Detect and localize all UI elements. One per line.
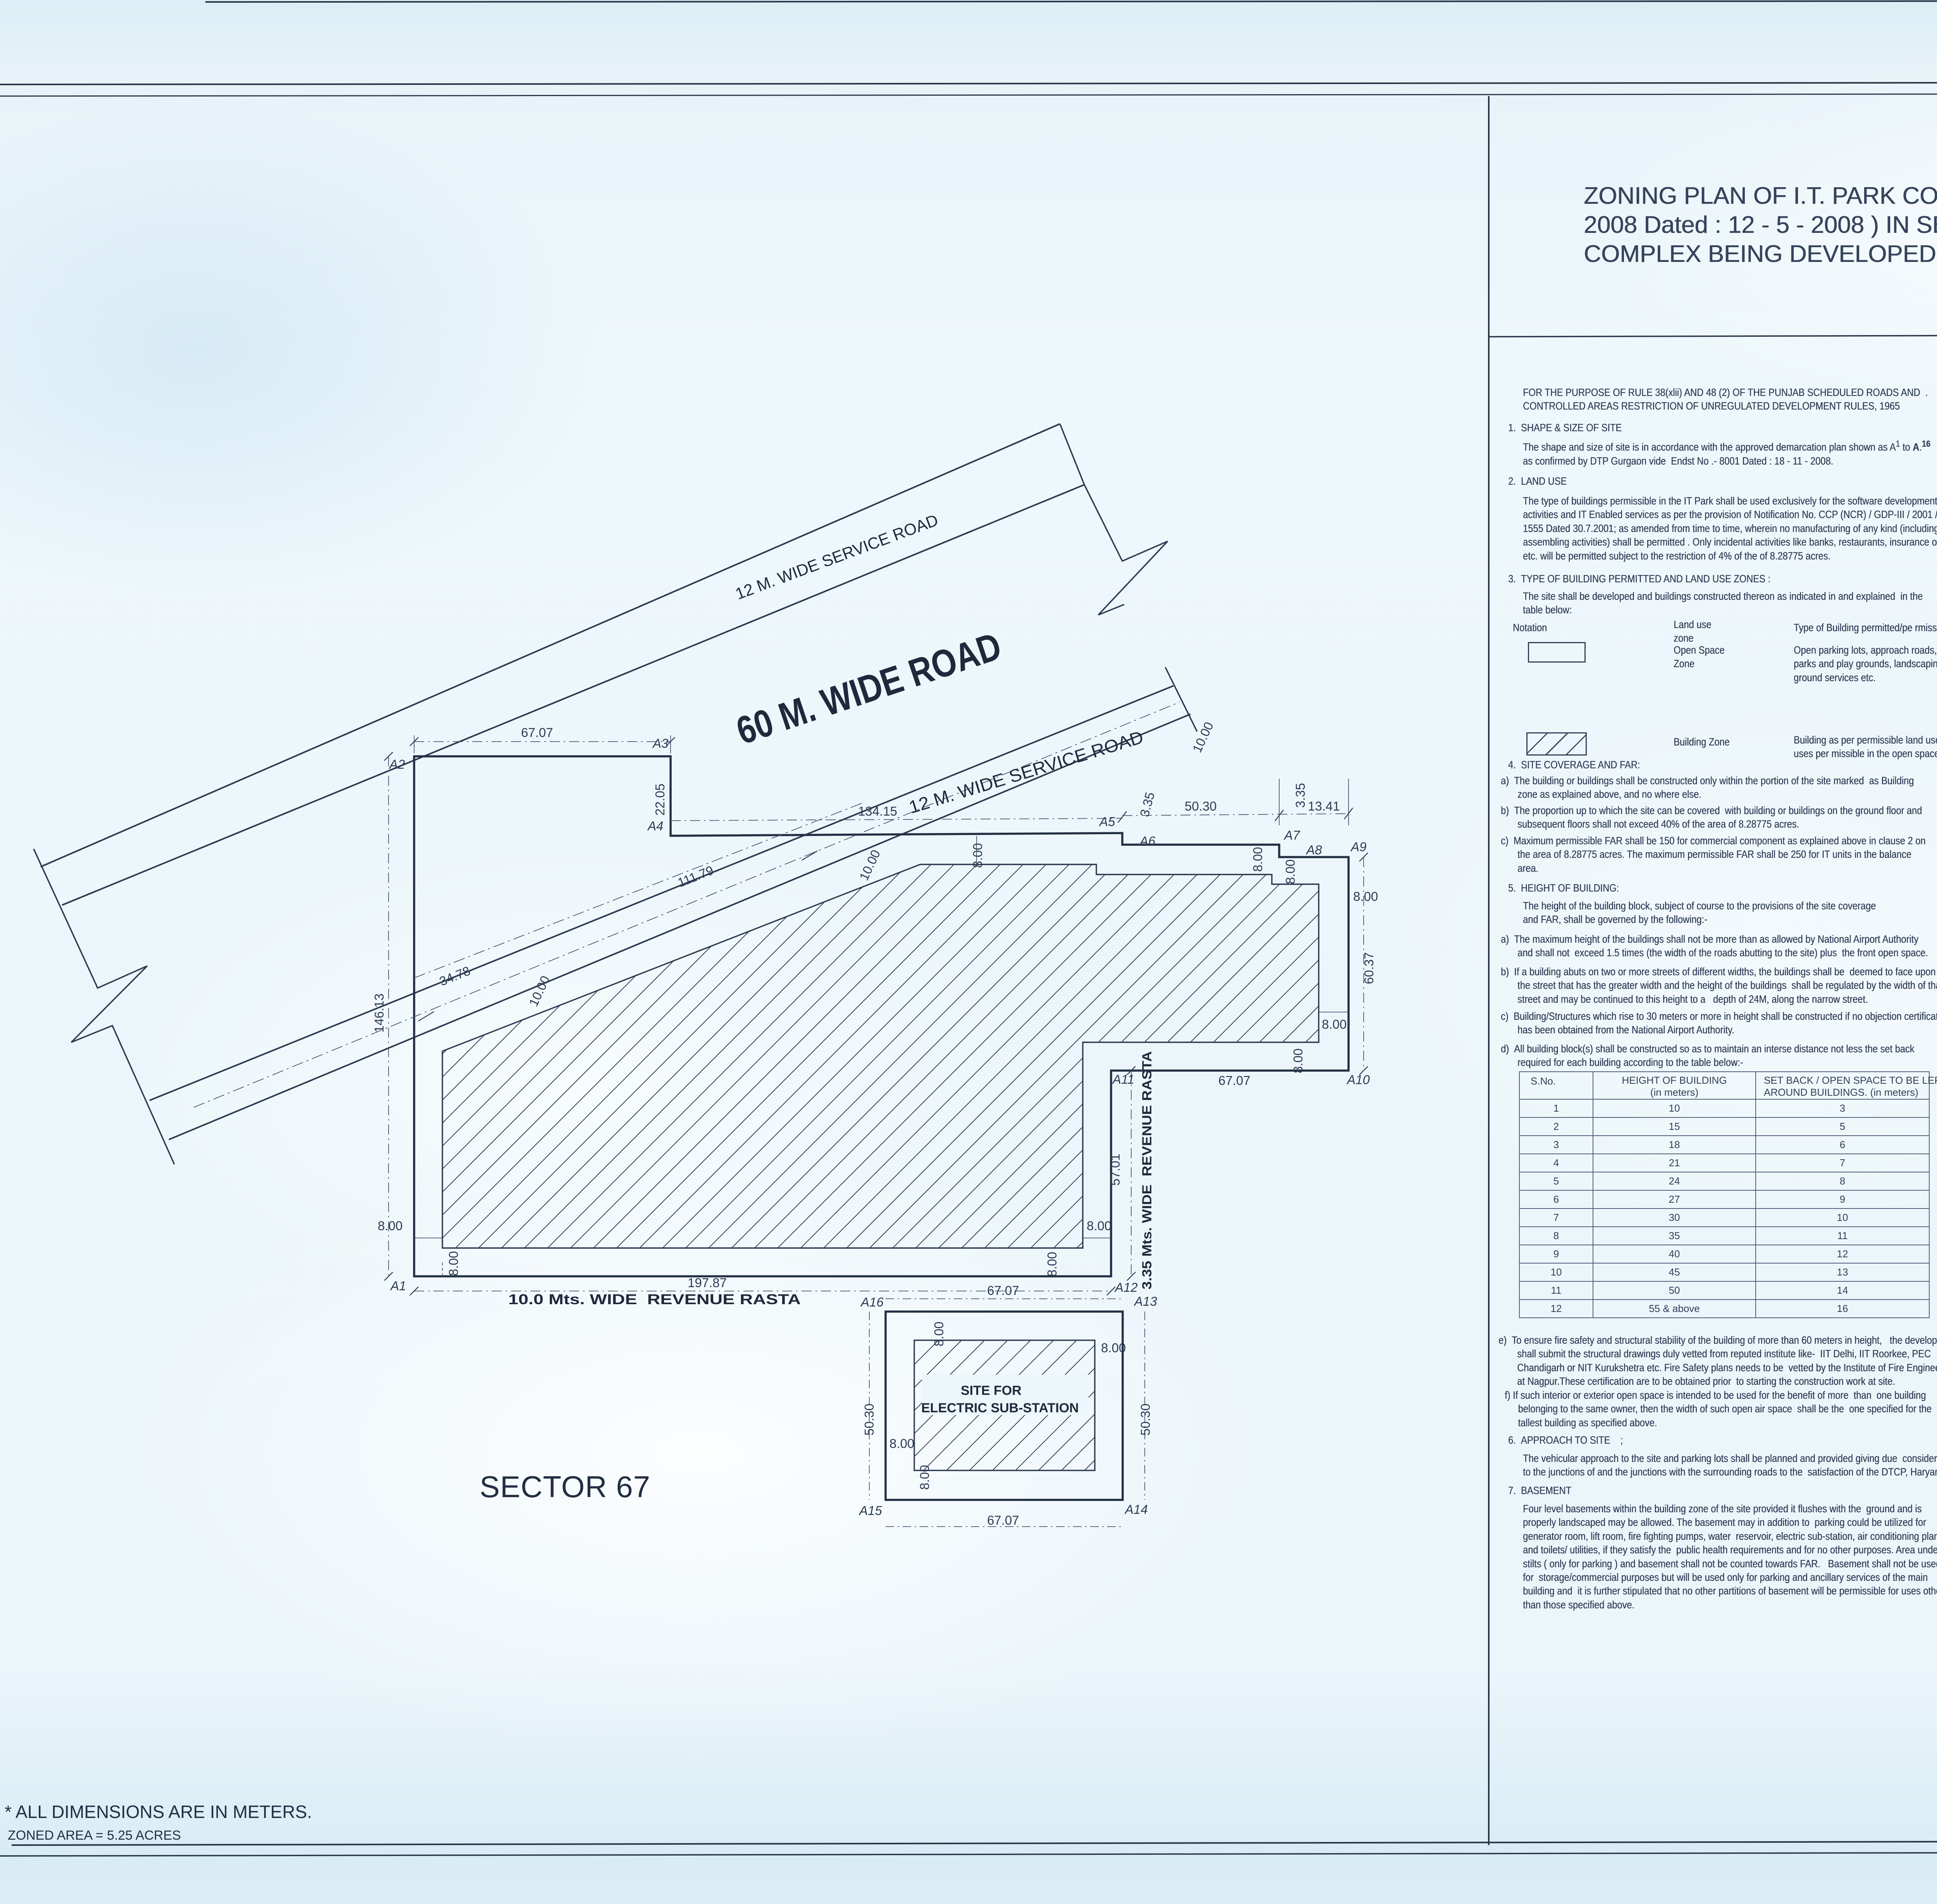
svg-text:A15: A15 xyxy=(858,1503,882,1518)
svg-text:50.30: 50.30 xyxy=(1185,799,1217,813)
svg-text:8.00: 8.00 xyxy=(889,1436,914,1451)
svg-text:* ALL DIMENSIONS ARE IN METERS: * ALL DIMENSIONS ARE IN METERS. xyxy=(5,1802,312,1822)
svg-text:197.87: 197.87 xyxy=(688,1276,727,1290)
svg-text:146.13: 146.13 xyxy=(372,993,386,1033)
svg-text:A5: A5 xyxy=(1099,814,1115,829)
svg-text:111.79: 111.79 xyxy=(676,863,716,890)
svg-text:67.07: 67.07 xyxy=(1218,1073,1251,1088)
svg-text:A13: A13 xyxy=(1134,1294,1157,1308)
svg-text:SITE FOR: SITE FOR xyxy=(961,1383,1022,1398)
svg-text:A14: A14 xyxy=(1124,1502,1148,1517)
svg-text:8.00: 8.00 xyxy=(378,1219,403,1233)
svg-text:13.41: 13.41 xyxy=(1308,799,1340,813)
svg-text:A10: A10 xyxy=(1346,1073,1370,1087)
svg-text:8.00: 8.00 xyxy=(1283,859,1297,884)
svg-text:57.01: 57.01 xyxy=(1108,1153,1122,1186)
svg-text:A4: A4 xyxy=(647,819,663,833)
svg-text:22.05: 22.05 xyxy=(653,783,667,816)
svg-text:60 M. WIDE ROAD: 60 M. WIDE ROAD xyxy=(731,624,1006,753)
svg-text:67.07: 67.07 xyxy=(987,1283,1019,1298)
svg-text:ZONED AREA = 5.25 ACRES: ZONED AREA = 5.25 ACRES xyxy=(8,1828,181,1843)
svg-text:8.00: 8.00 xyxy=(917,1465,932,1490)
svg-text:A6: A6 xyxy=(1139,834,1156,848)
svg-text:10.00: 10.00 xyxy=(526,973,552,1008)
svg-text:8.00: 8.00 xyxy=(1353,889,1378,904)
svg-text:10.0 Mts. WIDE REVENUE RASTA: 10.0 Mts. WIDE REVENUE RASTA xyxy=(508,1291,801,1307)
svg-text:A12: A12 xyxy=(1114,1280,1138,1295)
svg-text:3.35: 3.35 xyxy=(1137,790,1157,818)
svg-text:134.15: 134.15 xyxy=(858,804,897,818)
svg-text:8.00: 8.00 xyxy=(1291,1048,1305,1073)
svg-text:A2: A2 xyxy=(389,757,405,771)
svg-text:60.37: 60.37 xyxy=(1362,952,1376,984)
svg-text:3.35: 3.35 xyxy=(1293,783,1307,808)
svg-text:A8: A8 xyxy=(1306,843,1322,857)
svg-text:A11: A11 xyxy=(1112,1072,1134,1086)
svg-text:8.00: 8.00 xyxy=(1322,1017,1347,1031)
svg-text:ELECTRIC SUB-STATION: ELECTRIC SUB-STATION xyxy=(921,1401,1079,1415)
svg-text:8.00: 8.00 xyxy=(1087,1219,1111,1233)
svg-text:10.00: 10.00 xyxy=(857,847,883,882)
svg-text:12 M. WIDE SERVICE ROAD: 12 M. WIDE SERVICE ROAD xyxy=(907,727,1146,818)
svg-text:67.07: 67.07 xyxy=(521,725,553,740)
svg-text:8.00: 8.00 xyxy=(970,843,985,868)
svg-text:50.30: 50.30 xyxy=(1138,1403,1153,1436)
svg-text:A1: A1 xyxy=(390,1279,406,1293)
svg-text:8.00: 8.00 xyxy=(1045,1252,1059,1277)
svg-text:8.00: 8.00 xyxy=(932,1322,946,1346)
svg-text:A16: A16 xyxy=(860,1295,884,1309)
svg-text:50.30: 50.30 xyxy=(862,1403,876,1436)
svg-text:3.35 Mts. WIDE REVENUE RASTA: 3.35 Mts. WIDE REVENUE RASTA xyxy=(1140,1051,1154,1289)
svg-text:67.07: 67.07 xyxy=(987,1513,1019,1527)
svg-text:A3: A3 xyxy=(652,736,669,751)
svg-text:8.00: 8.00 xyxy=(1251,847,1265,872)
svg-text:SECTOR 67: SECTOR 67 xyxy=(480,1470,650,1504)
svg-text:A9: A9 xyxy=(1350,840,1366,854)
svg-text:8.00: 8.00 xyxy=(1101,1341,1126,1355)
svg-text:8.00: 8.00 xyxy=(446,1251,461,1276)
svg-text:A7: A7 xyxy=(1283,828,1301,842)
